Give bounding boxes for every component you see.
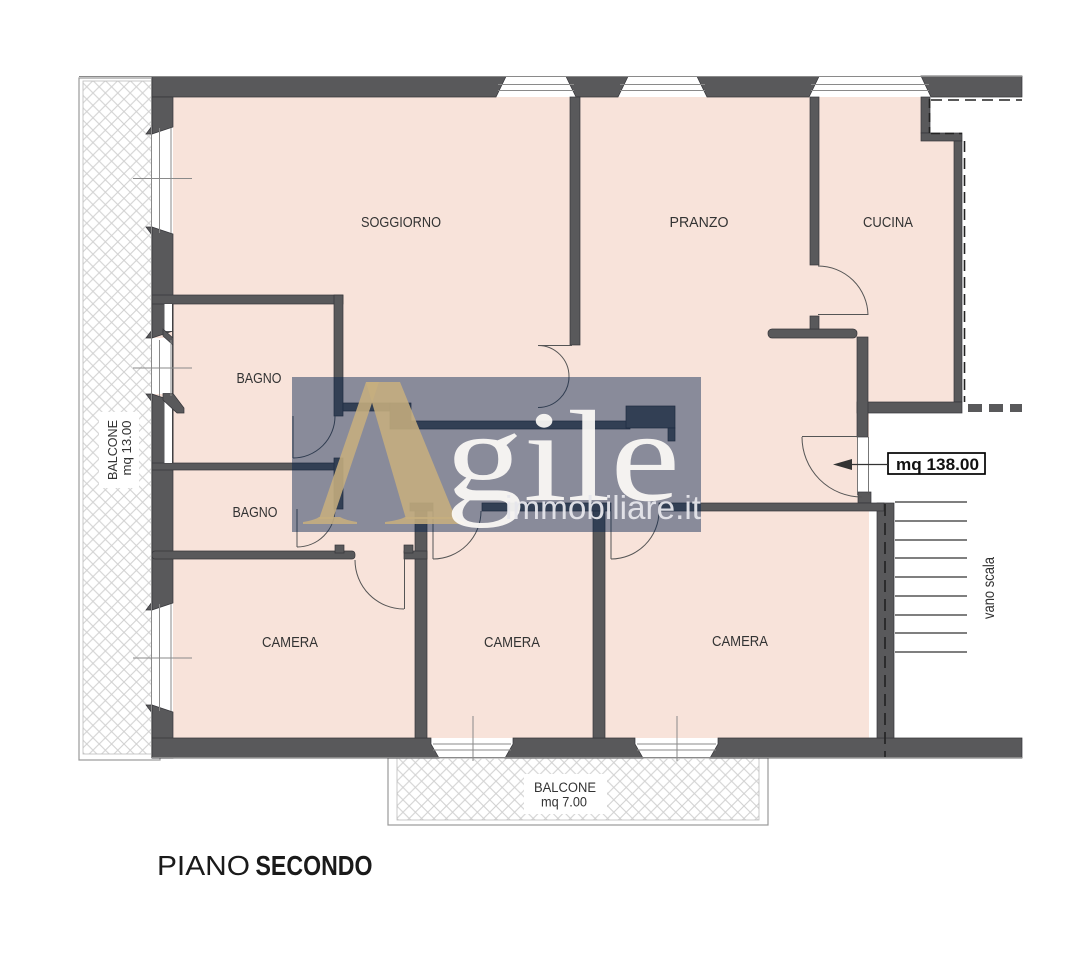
svg-text:immobiliare.it: immobiliare.it — [505, 489, 701, 526]
svg-text:mq 13.00: mq 13.00 — [119, 421, 134, 476]
svg-text:SOGGIORNO: SOGGIORNO — [361, 214, 441, 231]
svg-text:PRANZO: PRANZO — [670, 214, 729, 231]
svg-text:CAMERA: CAMERA — [712, 633, 768, 650]
svg-text:BAGNO: BAGNO — [237, 370, 282, 387]
svg-text:SECONDO: SECONDO — [256, 850, 373, 881]
svg-text:PIANO: PIANO — [157, 850, 250, 881]
svg-text:CUCINA: CUCINA — [863, 214, 913, 231]
svg-text:BALCONE: BALCONE — [534, 780, 596, 795]
svg-text:BALCONE: BALCONE — [105, 420, 120, 480]
svg-text:mq 7.00: mq 7.00 — [541, 795, 587, 810]
svg-text:vano scala: vano scala — [981, 557, 998, 619]
svg-text:CAMERA: CAMERA — [262, 634, 318, 651]
svg-text:CAMERA: CAMERA — [484, 634, 540, 651]
svg-text:mq 138.00: mq 138.00 — [896, 456, 979, 474]
svg-text:BAGNO: BAGNO — [233, 504, 278, 521]
